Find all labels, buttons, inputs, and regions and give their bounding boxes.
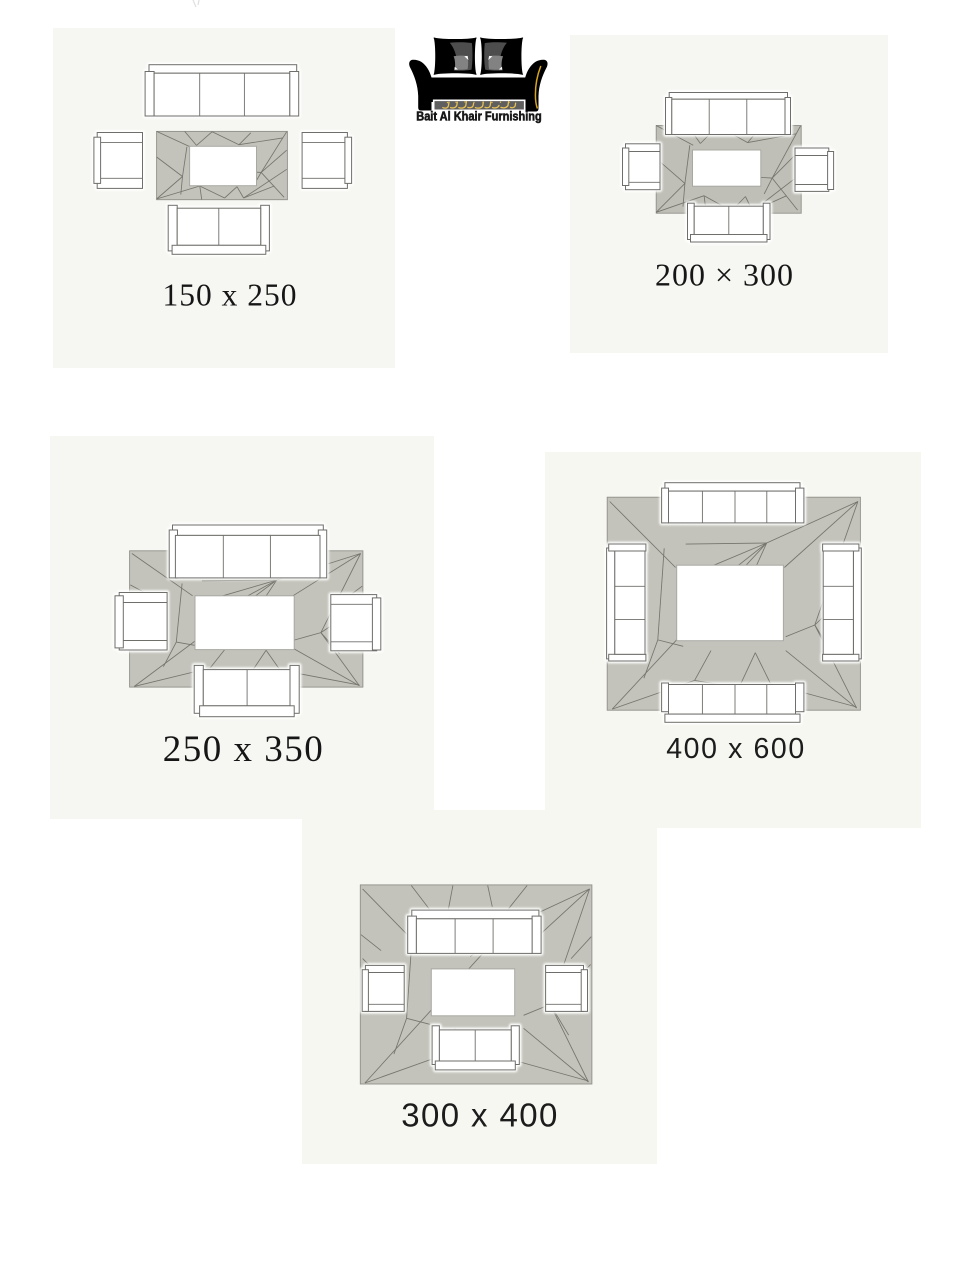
svg-text:Bait Al Khair Furnishing: Bait Al Khair Furnishing (416, 110, 542, 124)
svg-text:200 × 300: 200 × 300 (655, 257, 794, 293)
svg-text:250 x 350: 250 x 350 (163, 729, 325, 770)
svg-text:150 x 250: 150 x 250 (163, 278, 298, 313)
svg-text:300 x 400: 300 x 400 (401, 1097, 559, 1134)
svg-text:400 x 600: 400 x 600 (666, 733, 806, 765)
